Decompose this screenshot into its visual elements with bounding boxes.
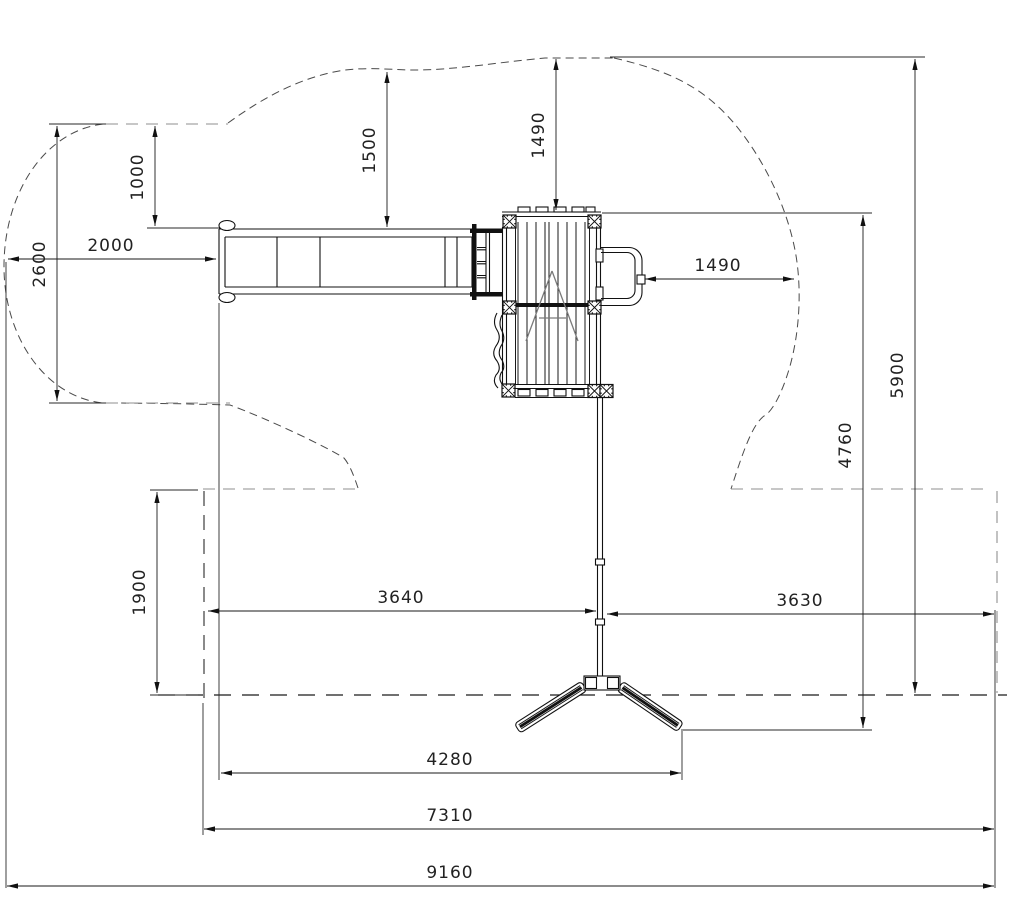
dim-label-1490-top: 1490 bbox=[529, 111, 549, 158]
dim-1000: 1000 bbox=[128, 126, 155, 226]
dim-5900: 5900 bbox=[888, 59, 915, 693]
dim-label-4280: 4280 bbox=[426, 750, 473, 770]
dim-label-1000: 1000 bbox=[128, 153, 148, 200]
dim-label-1500: 1500 bbox=[360, 126, 380, 173]
zone-bottom-curve bbox=[106, 403, 358, 488]
post-bottom-right-outer bbox=[600, 385, 613, 398]
dimensions: 2600 1000 1500 1490 2000 1490 5900 bbox=[7, 59, 994, 886]
post-mid-left bbox=[503, 301, 516, 314]
dim-label-5900: 5900 bbox=[888, 351, 908, 398]
dim-label-2000: 2000 bbox=[87, 236, 134, 256]
swing-feet bbox=[514, 676, 683, 733]
plan-drawing: 2600 1000 1500 1490 2000 1490 5900 bbox=[0, 0, 1009, 901]
platform-bottom-tabs bbox=[518, 390, 584, 397]
platform-tower bbox=[502, 207, 613, 398]
dim-label-9160: 9160 bbox=[426, 863, 473, 883]
technical-drawing-page: 2600 1000 1500 1490 2000 1490 5900 bbox=[0, 0, 1009, 901]
zone-left-arc bbox=[4, 124, 103, 403]
swing-beam bbox=[596, 398, 605, 676]
mid-guard-rail bbox=[502, 303, 601, 307]
beam-joint-1 bbox=[596, 559, 605, 565]
dim-label-7310: 7310 bbox=[426, 806, 473, 826]
post-bottom-left bbox=[502, 384, 515, 397]
dim-4760: 4760 bbox=[836, 215, 863, 728]
dim-label-1490-right: 1490 bbox=[694, 256, 741, 276]
slide-end-cap-top bbox=[219, 221, 235, 231]
post-mid-right bbox=[588, 301, 601, 314]
swing-leg-left bbox=[514, 681, 587, 733]
post-bottom-right bbox=[588, 385, 601, 398]
swing-leg-right bbox=[617, 681, 684, 731]
slide-end-cap-bottom bbox=[219, 293, 235, 303]
safety-zone-boundary bbox=[4, 58, 799, 489]
post-top-right bbox=[588, 215, 601, 228]
dim-3630: 3630 bbox=[607, 591, 994, 614]
dim-label-4760: 4760 bbox=[836, 421, 856, 468]
dim-label-3640: 3640 bbox=[377, 588, 424, 608]
rope-squiggle bbox=[494, 313, 500, 388]
dim-label-2600: 2600 bbox=[30, 240, 50, 287]
handrail-connector bbox=[637, 275, 645, 284]
beam-joint-2 bbox=[596, 619, 605, 625]
dim-1490-top: 1490 bbox=[529, 59, 556, 210]
dim-7310: 7310 bbox=[204, 806, 994, 829]
dim-4280: 4280 bbox=[221, 750, 681, 773]
dim-9160: 9160 bbox=[7, 863, 994, 886]
dim-3640: 3640 bbox=[208, 588, 596, 611]
handrail-loop bbox=[601, 248, 645, 306]
slide bbox=[219, 221, 492, 303]
dim-1490-right: 1490 bbox=[645, 256, 794, 279]
platform-top-tabs bbox=[518, 207, 595, 212]
dim-label-1900: 1900 bbox=[130, 568, 150, 615]
post-top-left bbox=[503, 215, 516, 228]
dim-1500: 1500 bbox=[360, 72, 387, 227]
dim-label-3630: 3630 bbox=[776, 591, 823, 611]
dim-1900: 1900 bbox=[130, 492, 157, 693]
extension-lines bbox=[6, 57, 995, 888]
ladder-rungs bbox=[477, 248, 486, 278]
access-ladder bbox=[470, 224, 504, 388]
